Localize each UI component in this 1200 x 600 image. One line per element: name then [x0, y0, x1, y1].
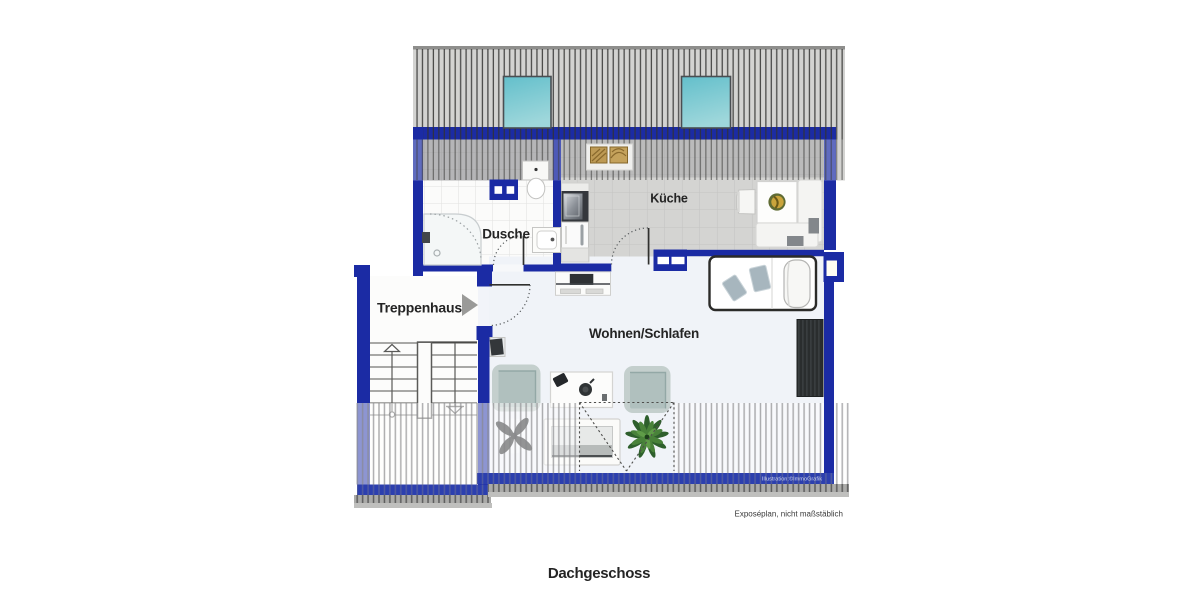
svg-text:Treppenhaus: Treppenhaus	[377, 300, 462, 316]
svg-text:Illustration:©ImmoGrafik: Illustration:©ImmoGrafik	[762, 476, 822, 483]
svg-text:Wohnen/Schlafen: Wohnen/Schlafen	[589, 326, 699, 341]
svg-text:Exposéplan, nicht maßstäblich: Exposéplan, nicht maßstäblich	[735, 510, 844, 519]
svg-text:Küche: Küche	[650, 192, 688, 206]
svg-text:Dachgeschoss: Dachgeschoss	[548, 565, 650, 582]
